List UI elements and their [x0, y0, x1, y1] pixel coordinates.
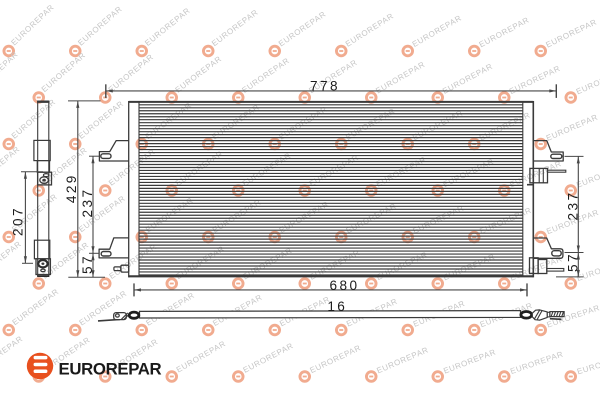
svg-text:EUROREPAR: EUROREPAR — [59, 360, 162, 379]
svg-text:57: 57 — [80, 254, 95, 274]
svg-text:57: 57 — [566, 252, 581, 272]
svg-text:429: 429 — [64, 173, 79, 203]
svg-text:778: 778 — [310, 79, 340, 94]
svg-text:237: 237 — [566, 191, 581, 221]
svg-text:680: 680 — [330, 278, 360, 293]
svg-text:237: 237 — [80, 188, 95, 218]
svg-text:16: 16 — [327, 299, 347, 314]
svg-text:207: 207 — [11, 206, 26, 236]
